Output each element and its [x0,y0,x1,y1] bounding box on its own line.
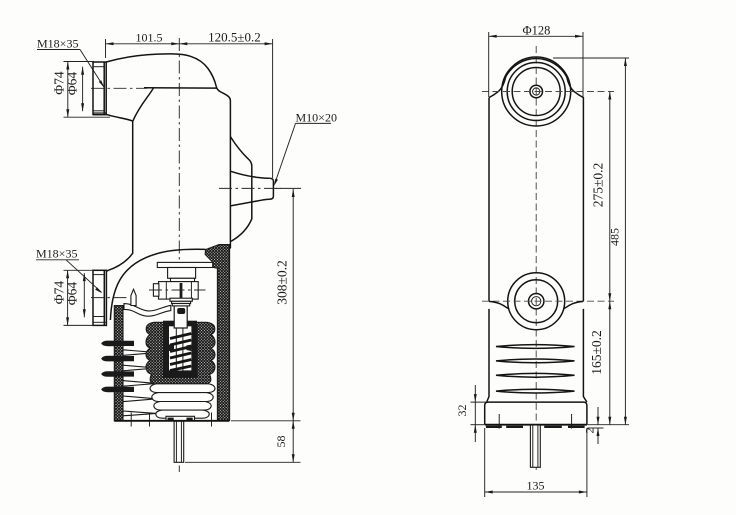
svg-text:485: 485 [607,228,621,246]
svg-text:2: 2 [583,428,597,434]
svg-text:58: 58 [274,436,288,448]
svg-text:M10×20: M10×20 [296,111,337,125]
svg-text:275±0.2: 275±0.2 [590,163,605,208]
svg-text:Φ64: Φ64 [65,72,80,96]
svg-text:101.5: 101.5 [136,31,163,45]
svg-text:32: 32 [455,405,469,417]
svg-text:M18×35: M18×35 [36,247,77,261]
svg-text:M18×35: M18×35 [37,37,78,51]
svg-text:308±0.2: 308±0.2 [275,260,290,305]
svg-text:135: 135 [527,479,545,493]
svg-text:Φ64: Φ64 [65,282,80,306]
svg-text:Φ128: Φ128 [523,23,551,37]
svg-text:165±0.2: 165±0.2 [589,330,604,375]
svg-text:120.5±0.2: 120.5±0.2 [208,30,261,45]
